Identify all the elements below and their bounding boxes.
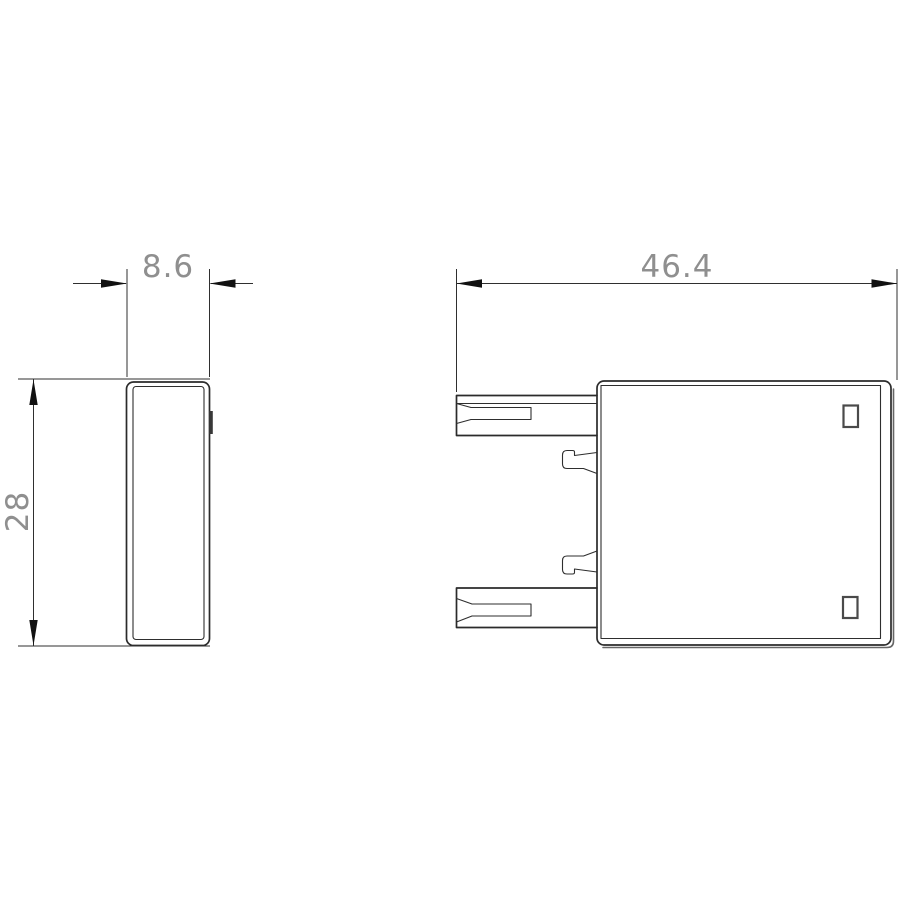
marker-square-bottom (843, 597, 858, 618)
snap-hook-bottom (563, 551, 598, 574)
drawing-canvas: 8.6 46.4 28 (0, 0, 900, 900)
terminal-blade-top (457, 396, 598, 436)
arrowhead-height-bottom (29, 620, 37, 646)
blade-top-chamfer-upper (457, 404, 472, 408)
front-view (457, 381, 894, 648)
arrowhead-side-left (101, 279, 127, 287)
arrowhead-height-top (29, 380, 37, 406)
blade-top-slot (471, 408, 531, 420)
blade-bottom-outline (457, 588, 598, 628)
marker-square-top (844, 406, 859, 428)
arrowhead-side-right (210, 279, 236, 287)
terminal-blade-bottom (457, 588, 598, 628)
arrowhead-front-left (457, 279, 483, 287)
side-view (127, 382, 212, 646)
dim-label-front-depth: 46.4 (640, 249, 713, 285)
blade-bottom-chamfer-upper (457, 599, 473, 605)
dim-label-side-width: 8.6 (142, 249, 194, 285)
blade-bottom-chamfer-lower (457, 616, 473, 622)
dim-height: 28 (0, 379, 210, 646)
arrowhead-front-right (872, 279, 898, 287)
dim-front-depth: 46.4 (457, 249, 898, 392)
dim-side-width: 8.6 (73, 249, 253, 377)
side-body-outline (127, 382, 210, 646)
front-body-inner-outline (601, 386, 881, 639)
blade-top-outline (457, 396, 598, 436)
dim-label-height: 28 (0, 491, 36, 532)
front-body-outline (597, 381, 891, 645)
dimension-drawing: 8.6 46.4 28 (0, 0, 900, 900)
blade-bottom-slot (472, 604, 531, 616)
snap-hook-top (563, 451, 598, 474)
blade-top-chamfer-lower (457, 420, 472, 424)
side-body-inner-outline (133, 387, 204, 640)
